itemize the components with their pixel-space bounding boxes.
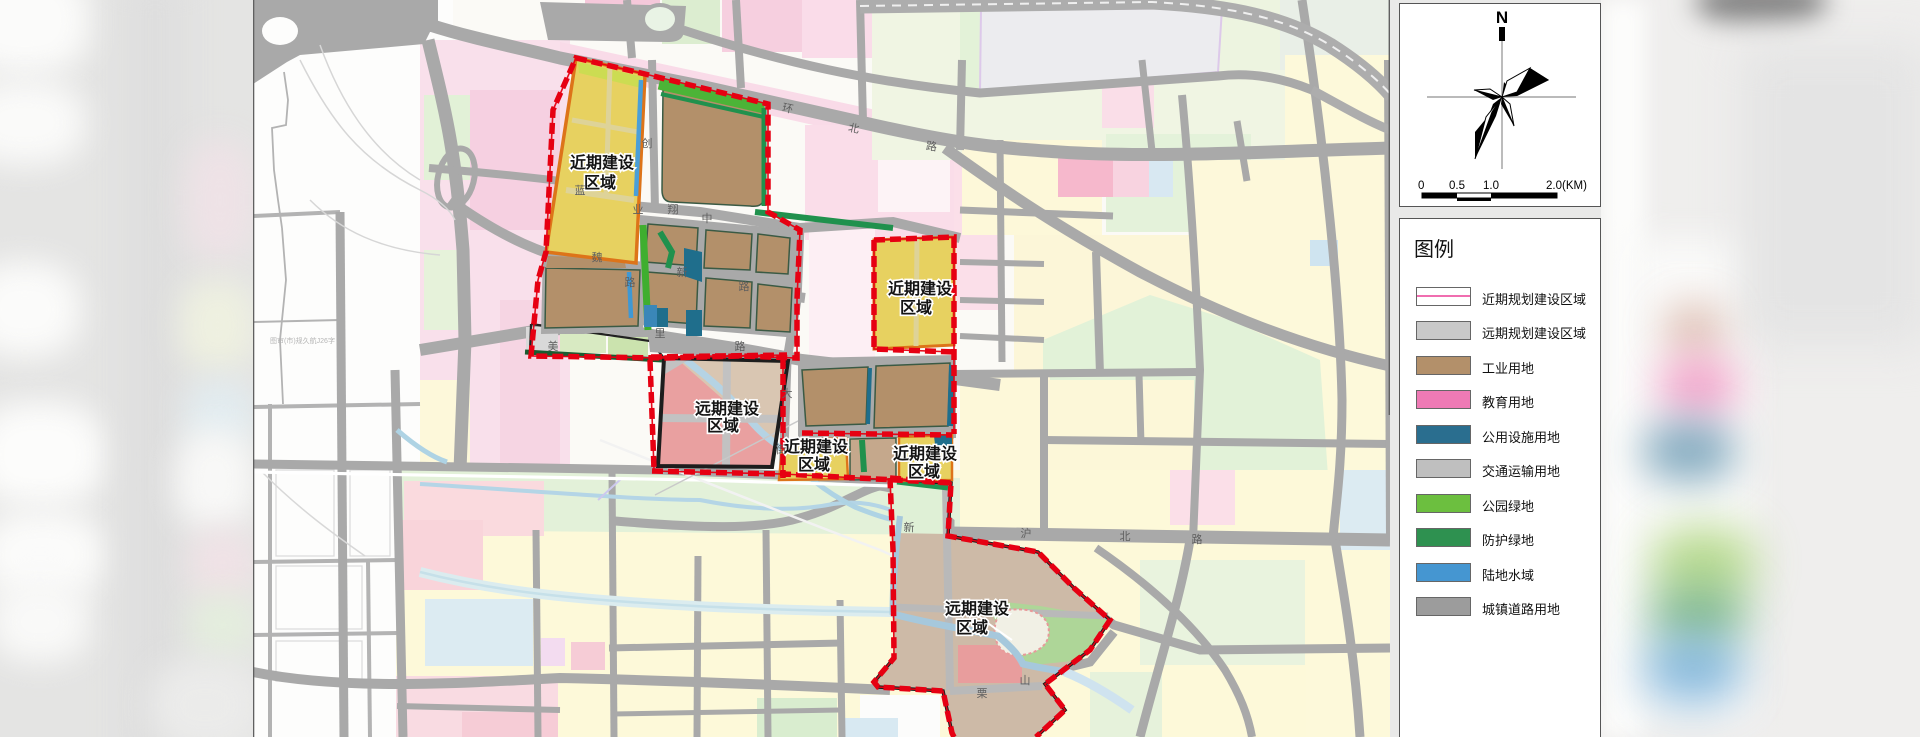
svg-text:区域: 区域 <box>956 618 988 637</box>
svg-text:业: 业 <box>633 203 644 216</box>
svg-text:路: 路 <box>625 276 636 289</box>
svg-text:里: 里 <box>655 327 666 340</box>
svg-text:路: 路 <box>1192 533 1203 546</box>
svg-text:魏: 魏 <box>592 250 603 264</box>
svg-text:区域: 区域 <box>584 173 616 192</box>
svg-text:区域: 区域 <box>908 462 940 481</box>
svg-text:近期建设: 近期建设 <box>570 153 635 172</box>
svg-text:中: 中 <box>702 212 713 225</box>
svg-text:路: 路 <box>739 280 750 293</box>
svg-text:近期建设: 近期建设 <box>893 444 958 463</box>
svg-text:美: 美 <box>548 340 559 353</box>
svg-text:1.0: 1.0 <box>1483 180 1499 192</box>
svg-text:2.0(KM): 2.0(KM) <box>1546 180 1587 192</box>
svg-text:新: 新 <box>677 265 688 279</box>
svg-text:北: 北 <box>1120 530 1131 543</box>
svg-text:创: 创 <box>642 137 653 150</box>
svg-text:区域: 区域 <box>798 455 830 474</box>
svg-text:大: 大 <box>782 386 793 400</box>
svg-text:远期建设: 远期建设 <box>945 599 1010 618</box>
svg-text:0.5: 0.5 <box>1449 180 1465 192</box>
svg-text:0: 0 <box>1418 180 1424 192</box>
svg-text:区域: 区域 <box>900 298 932 317</box>
svg-text:N: N <box>1496 8 1508 27</box>
svg-text:近期建设: 近期建设 <box>784 437 849 456</box>
svg-text:蓝: 蓝 <box>575 184 586 197</box>
svg-text:翔: 翔 <box>668 202 679 216</box>
svg-text:街: 街 <box>776 442 787 456</box>
svg-text:近期建设: 近期建设 <box>888 279 953 298</box>
svg-text:栗: 栗 <box>977 688 988 700</box>
svg-text:路: 路 <box>925 139 938 153</box>
svg-text:远期建设: 远期建设 <box>695 399 760 418</box>
svg-text:路: 路 <box>735 340 746 353</box>
svg-text:图审(市)规久航J26字: 图审(市)规久航J26字 <box>270 336 335 345</box>
svg-text:新: 新 <box>904 520 915 534</box>
svg-text:沪: 沪 <box>1021 526 1032 540</box>
svg-text:区域: 区域 <box>707 416 739 435</box>
svg-text:山: 山 <box>1020 674 1031 687</box>
